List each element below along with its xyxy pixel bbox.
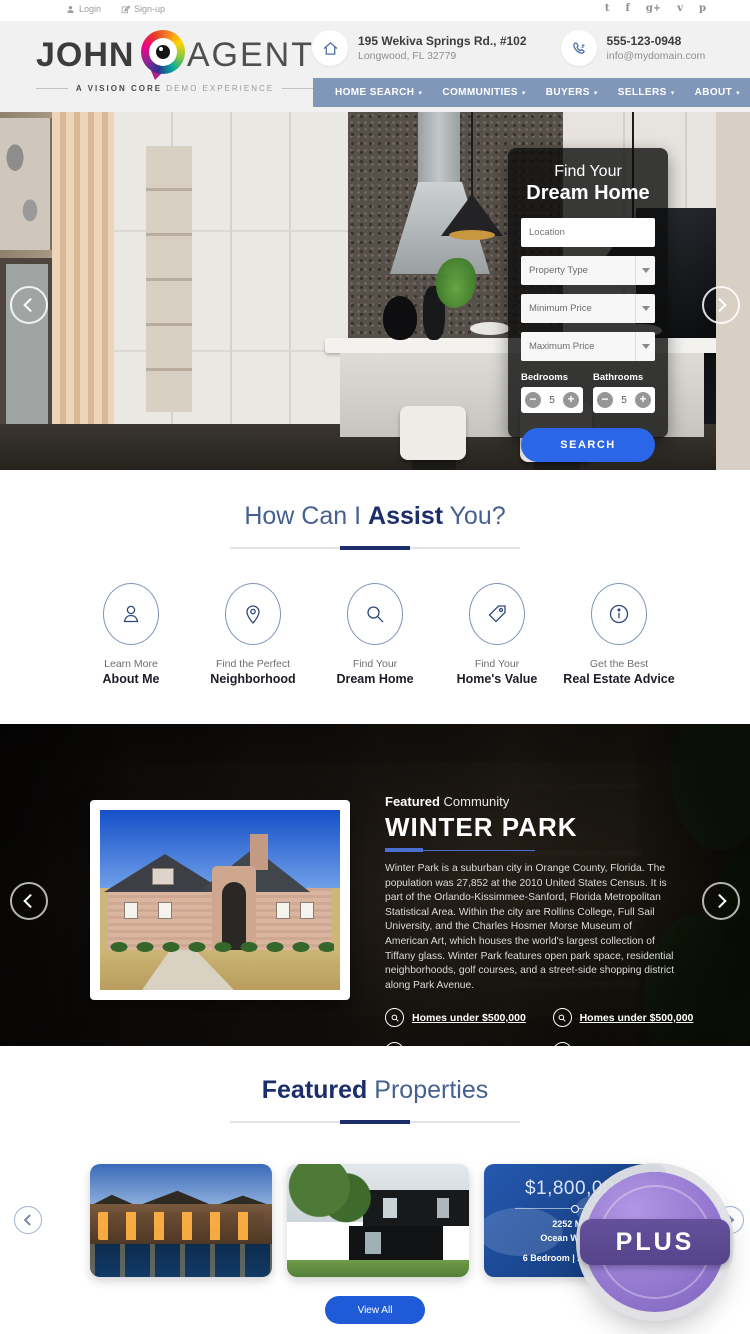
properties-prev-arrow[interactable] <box>14 1206 42 1234</box>
property-photo <box>287 1164 469 1277</box>
assist-item-advice[interactable]: Get the Best Real Estate Advice <box>558 583 680 686</box>
chevron-down-icon: ▾ <box>418 89 422 97</box>
bathrooms-decrement-button[interactable]: − <box>597 392 613 408</box>
tagline-bold: A VISION CORE <box>76 84 162 93</box>
eye-pin-logo-icon <box>141 30 179 80</box>
email-address[interactable]: info@mydomain.com <box>607 50 706 62</box>
facebook-icon[interactable]: f <box>626 3 630 14</box>
info-icon <box>607 602 631 626</box>
chevron-down-icon <box>635 294 655 323</box>
chevron-down-icon: ▾ <box>736 89 740 97</box>
winter-park-house-photo <box>100 810 340 990</box>
header-contact: 195 Wekiva Springs Rd., #102 Longwood, F… <box>312 30 705 66</box>
phone-icon <box>561 30 597 66</box>
assist-item-homes-value[interactable]: Find Your Home's Value <box>436 583 558 686</box>
properties-title: Featured Properties <box>0 1076 750 1105</box>
chevron-left-icon <box>23 894 37 908</box>
social-links: t f g+ v p <box>605 3 706 14</box>
homes-under-link[interactable]: Homes under $1,000,000 <box>553 1042 703 1046</box>
featured-community-section: Featured Community WINTER PARK Winter Pa… <box>0 720 750 1046</box>
community-eyebrow: Featured Community <box>385 794 677 809</box>
pencil-icon <box>121 5 130 14</box>
bedrooms-value: 5 <box>549 395 555 406</box>
search-button[interactable]: SEARCH <box>521 428 655 462</box>
bathrooms-label: Bathrooms <box>593 372 655 383</box>
community-description: Winter Park is a suburban city in Orange… <box>385 862 677 993</box>
property-card[interactable] <box>287 1164 469 1277</box>
homes-under-link[interactable]: Homes under $500,000 <box>385 1008 535 1027</box>
dream-home-search-form: Find Your Dream Home Property Type Minim… <box>508 148 668 438</box>
map-pin-icon <box>241 602 265 626</box>
vimeo-icon[interactable]: v <box>677 3 683 14</box>
plus-badge: PLUS <box>585 1172 725 1312</box>
home-icon <box>312 30 348 66</box>
signup-link[interactable]: Sign-up <box>121 4 165 14</box>
form-title-line2: Dream Home <box>521 182 655 205</box>
plus-badge-label: PLUS <box>616 1228 695 1257</box>
phone-block: 555-123-0948 info@mydomain.com <box>561 30 706 66</box>
hero-carousel: Find Your Dream Home Property Type Minim… <box>0 112 750 470</box>
bedrooms-label: Bedrooms <box>521 372 583 383</box>
pinterest-icon[interactable]: p <box>699 3 706 14</box>
nav-item-buyers[interactable]: BUYERS▾ <box>536 87 608 98</box>
assist-item-dream-home[interactable]: Find Your Dream Home <box>314 583 436 686</box>
chevron-down-icon <box>635 256 655 285</box>
nav-item-communities[interactable]: COMMUNITIES▾ <box>432 87 535 98</box>
logo-first-word: JOHN <box>36 36 134 75</box>
logo-last-word: AGENT <box>187 36 314 75</box>
chevron-down-icon <box>635 332 655 361</box>
google-plus-icon[interactable]: g+ <box>646 3 661 14</box>
chevron-left-icon <box>24 1214 35 1225</box>
assist-item-about-me[interactable]: Learn More About Me <box>70 583 192 686</box>
phone-number[interactable]: 555-123-0948 <box>607 34 706 48</box>
community-photo-card[interactable] <box>90 800 350 1000</box>
address-block: 195 Wekiva Springs Rd., #102 Longwood, F… <box>312 30 527 66</box>
homes-under-link[interactable]: Homes under $1,000,000 <box>385 1042 535 1046</box>
search-icon <box>385 1008 404 1027</box>
user-icon <box>66 5 75 14</box>
featured-properties-section: Featured Properties $1,800,000 2252 Maga <box>0 1046 750 1334</box>
community-title: WINTER PARK <box>385 812 677 843</box>
chevron-right-icon <box>713 894 727 908</box>
twitter-icon[interactable]: t <box>605 3 610 14</box>
login-link[interactable]: Login <box>66 4 101 14</box>
chevron-down-icon: ▾ <box>594 89 598 97</box>
chevron-down-icon: ▾ <box>671 89 675 97</box>
form-title-line1: Find Your <box>521 163 655 181</box>
search-icon <box>553 1042 572 1046</box>
signup-label: Sign-up <box>134 4 165 14</box>
search-icon <box>385 1042 404 1046</box>
view-all-button[interactable]: View All <box>325 1296 425 1324</box>
nav-item-about[interactable]: ABOUT▾ <box>685 87 750 98</box>
property-photo <box>90 1164 272 1277</box>
property-card[interactable] <box>90 1164 272 1277</box>
address-line2: Longwood, FL 32779 <box>358 50 527 62</box>
chevron-left-icon <box>23 298 37 312</box>
tagline-rest: DEMO EXPERIENCE <box>162 84 274 93</box>
bedrooms-stepper: − 5 + <box>521 387 583 413</box>
community-next-arrow[interactable] <box>702 882 740 920</box>
section-divider <box>230 547 520 549</box>
hero-prev-arrow[interactable] <box>10 286 48 324</box>
homes-under-link[interactable]: Homes under $500,000 <box>553 1008 703 1027</box>
bedrooms-increment-button[interactable]: + <box>563 392 579 408</box>
property-type-select[interactable]: Property Type <box>521 256 655 285</box>
bathrooms-value: 5 <box>621 395 627 406</box>
assist-section: How Can I Assist You? Learn More About M… <box>0 470 750 720</box>
main-nav: HOME SEARCH▾ COMMUNITIES▾ BUYERS▾ SELLER… <box>313 78 750 107</box>
assist-title: How Can I Assist You? <box>0 502 750 531</box>
hero-next-arrow[interactable] <box>702 286 740 324</box>
user-icon <box>119 602 143 626</box>
section-divider <box>230 1121 520 1123</box>
logo-tagline: A VISION CORE DEMO EXPERIENCE <box>36 84 314 93</box>
plus-badge-band: PLUS <box>580 1219 730 1265</box>
site-header: JOHN AGENT A VISION CORE DEMO EXPERIENCE… <box>0 22 750 112</box>
maximum-price-select[interactable]: Maximum Price <box>521 332 655 361</box>
site-logo[interactable]: JOHN AGENT A VISION CORE DEMO EXPERIENCE <box>36 30 314 93</box>
minimum-price-select[interactable]: Minimum Price <box>521 294 655 323</box>
nav-item-home-search[interactable]: HOME SEARCH▾ <box>325 87 432 98</box>
address-line1: 195 Wekiva Springs Rd., #102 <box>358 34 527 48</box>
tag-icon <box>485 602 509 626</box>
login-label: Login <box>79 4 101 14</box>
top-utility-bar: Login Sign-up t f g+ v p <box>0 0 750 22</box>
search-icon <box>363 602 387 626</box>
chevron-down-icon: ▾ <box>522 89 526 97</box>
bathrooms-stepper: − 5 + <box>593 387 655 413</box>
location-input[interactable] <box>521 218 655 247</box>
nav-item-sellers[interactable]: SELLERS▾ <box>608 87 685 98</box>
search-icon <box>553 1008 572 1027</box>
chevron-right-icon <box>713 298 727 312</box>
bedrooms-decrement-button[interactable]: − <box>525 392 541 408</box>
bathrooms-increment-button[interactable]: + <box>635 392 651 408</box>
community-prev-arrow[interactable] <box>10 882 48 920</box>
assist-item-neighborhood[interactable]: Find the Perfect Neighborhood <box>192 583 314 686</box>
